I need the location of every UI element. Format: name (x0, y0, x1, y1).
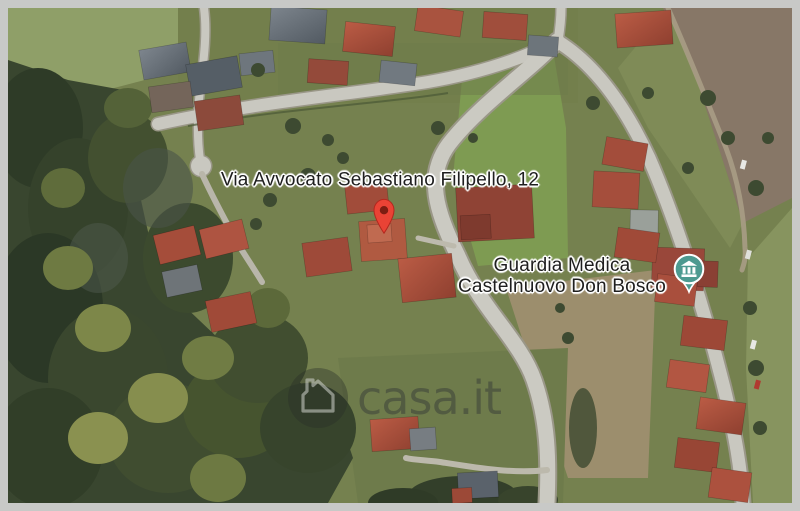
poi-label: Guardia Medica Castelnuovo Don Bosco (458, 255, 666, 297)
poi-label-line1: Guardia Medica (458, 255, 666, 276)
satellite-map[interactable]: Via Avvocato Sebastiano Filipello, 12 Gu… (8, 8, 792, 503)
poi-label-line2: Castelnuovo Don Bosco (458, 276, 666, 297)
civic-building-pin-icon[interactable] (672, 252, 706, 294)
screenshot-frame: Via Avvocato Sebastiano Filipello, 12 Gu… (0, 0, 800, 511)
destination-pin-icon[interactable] (372, 198, 396, 234)
address-label: Via Avvocato Sebastiano Filipello, 12 (221, 170, 539, 191)
